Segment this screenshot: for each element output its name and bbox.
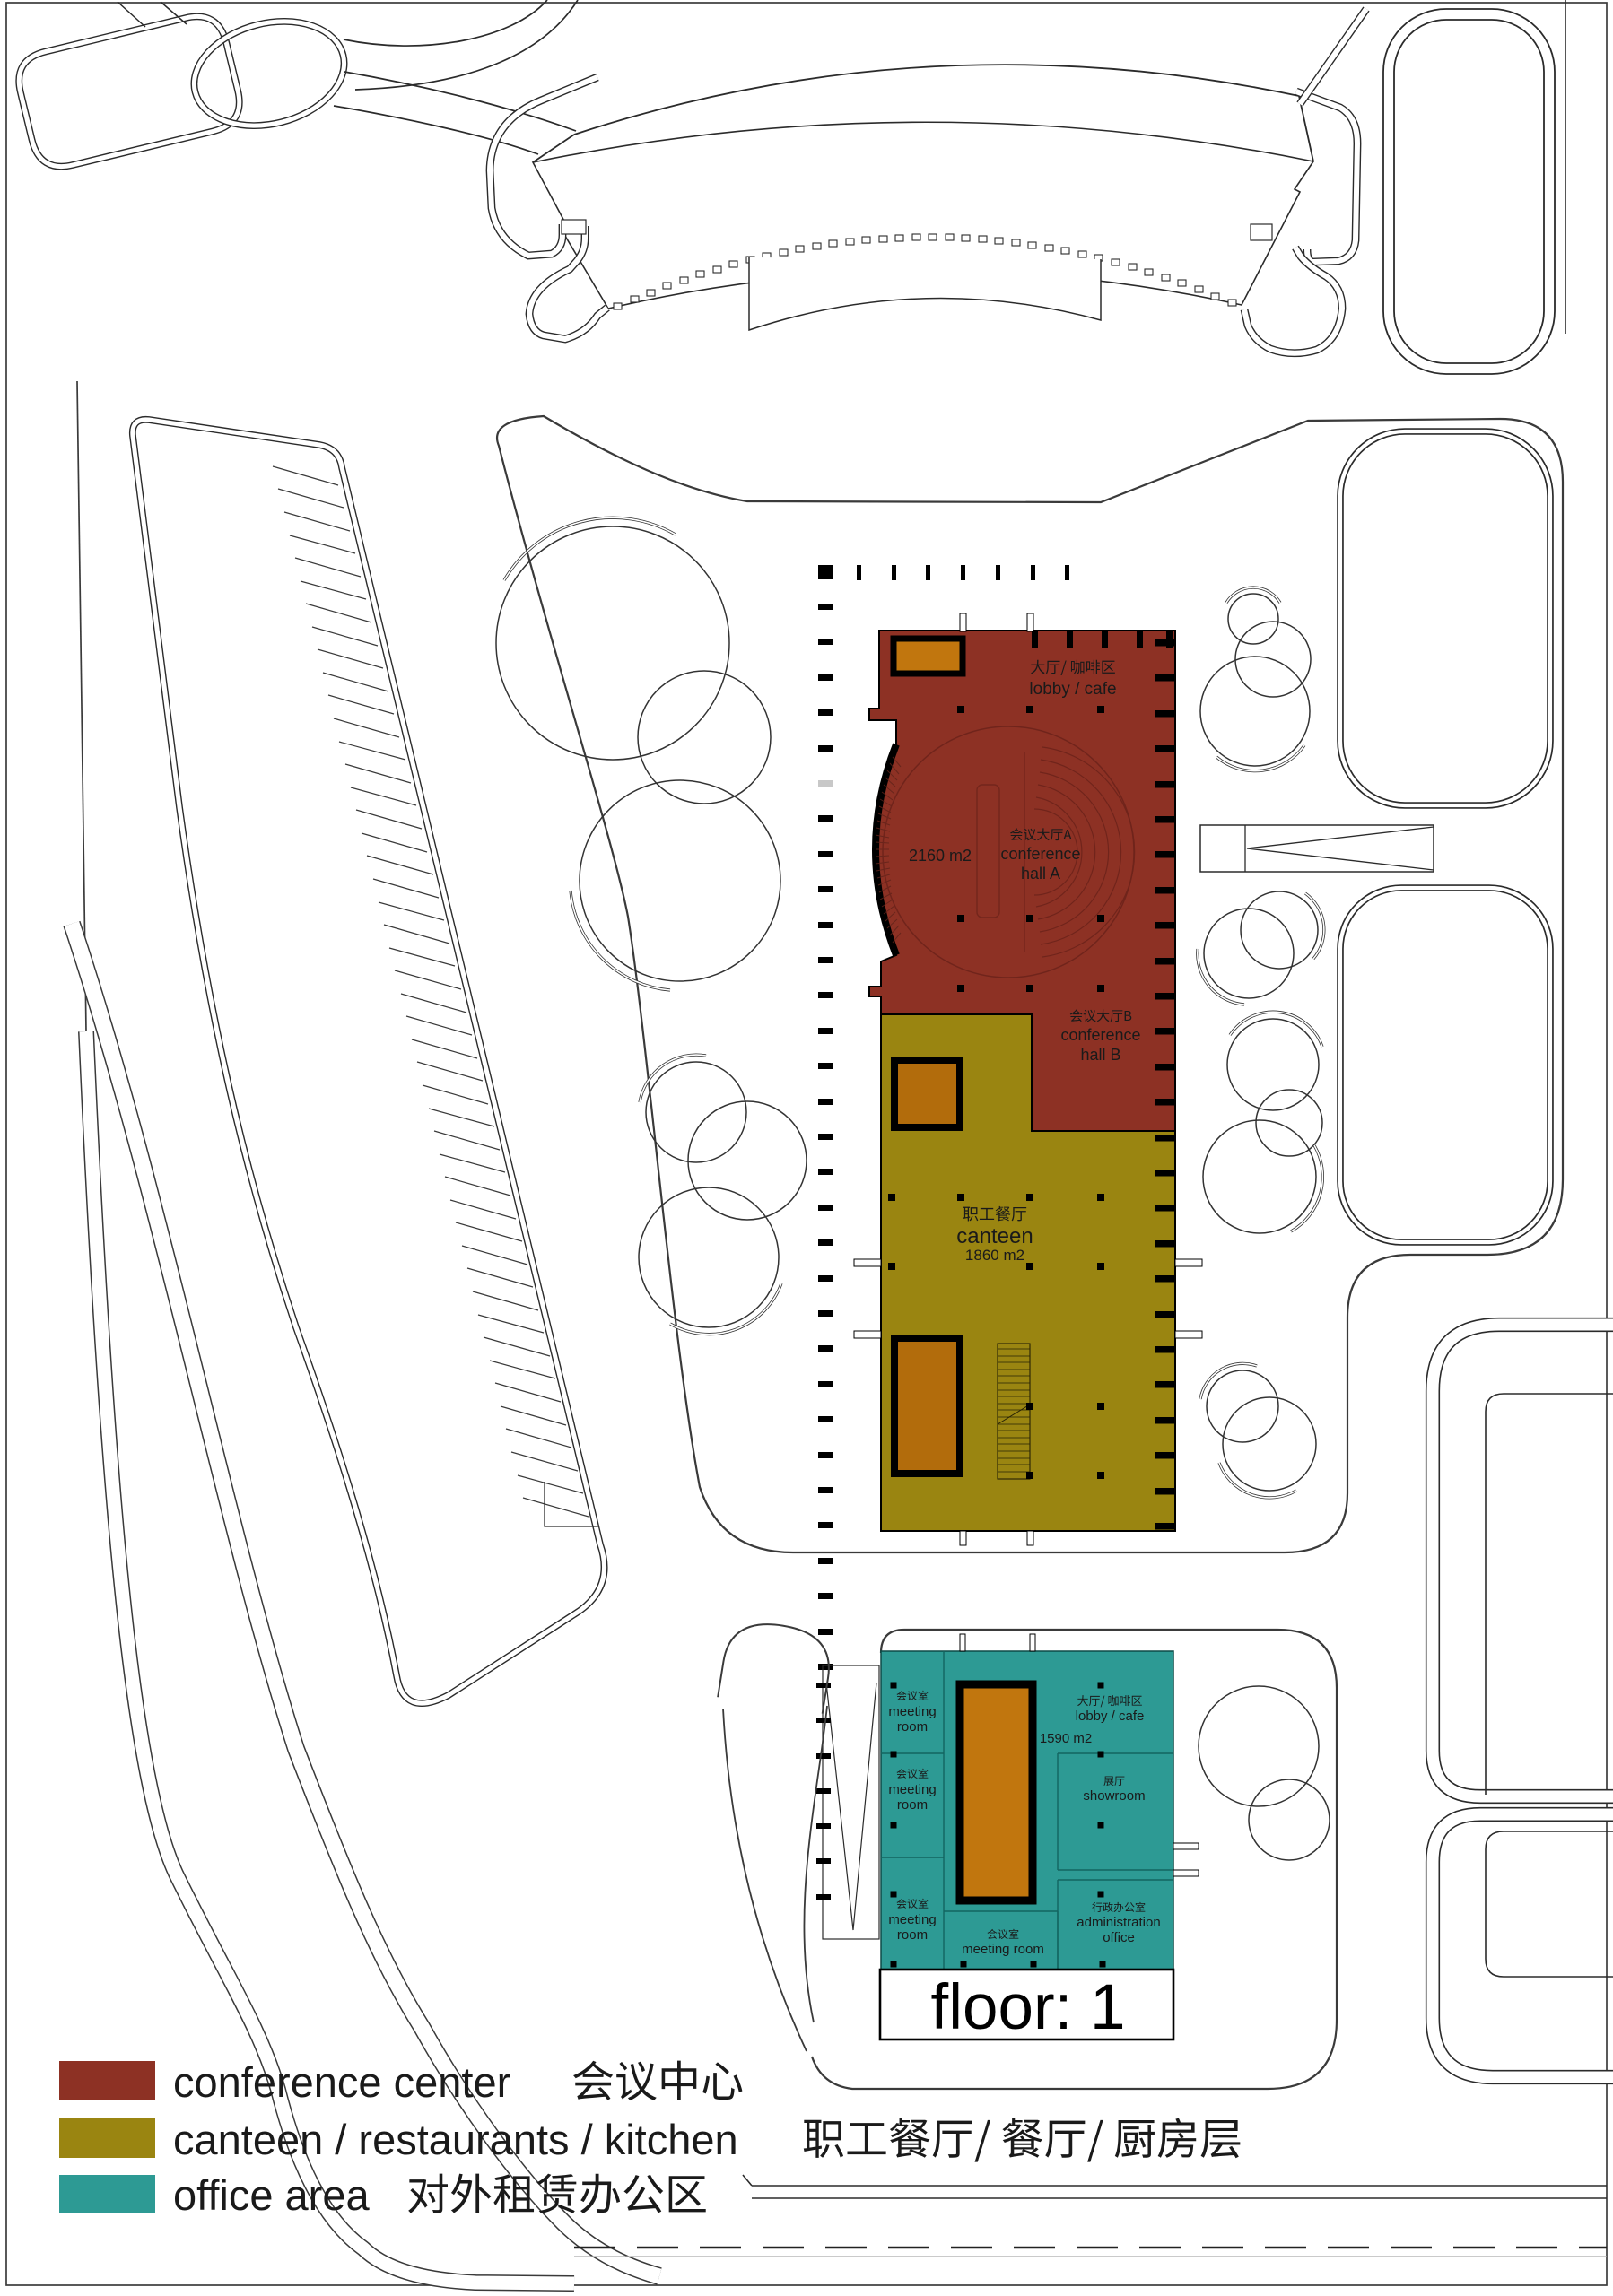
svg-text:room: room (897, 1797, 928, 1813)
svg-text:floor: 1: floor: 1 (930, 1972, 1125, 2043)
svg-text:canteen / restaurants / kitche: canteen / restaurants / kitchen (173, 2116, 738, 2163)
svg-text:administration: administration (1077, 1915, 1160, 1930)
svg-text:1860 m2: 1860 m2 (965, 1247, 1024, 1264)
svg-text:conference center: conference center (173, 2058, 510, 2106)
svg-text:lobby / cafe: lobby / cafe (1029, 680, 1116, 699)
svg-text:conference: conference (1060, 1026, 1140, 1044)
svg-text:2160 m2: 2160 m2 (909, 847, 972, 865)
svg-text:showroom: showroom (1083, 1788, 1145, 1804)
svg-text:meeting room: meeting room (962, 1942, 1044, 1957)
svg-text:1590 m2: 1590 m2 (1040, 1731, 1092, 1746)
svg-text:hall B: hall B (1080, 1046, 1120, 1064)
svg-text:lobby / cafe: lobby / cafe (1076, 1709, 1145, 1724)
svg-text:room: room (897, 1719, 928, 1735)
svg-text:conference: conference (1000, 845, 1080, 863)
svg-text:room: room (897, 1927, 928, 1943)
svg-text:office: office (1103, 1930, 1135, 1945)
svg-text:meeting: meeting (888, 1912, 936, 1927)
svg-text:canteen: canteen (956, 1224, 1033, 1248)
svg-text:office area: office area (173, 2171, 370, 2219)
svg-text:meeting: meeting (888, 1704, 936, 1719)
svg-text:hall A: hall A (1021, 865, 1060, 883)
svg-text:meeting: meeting (888, 1782, 936, 1797)
